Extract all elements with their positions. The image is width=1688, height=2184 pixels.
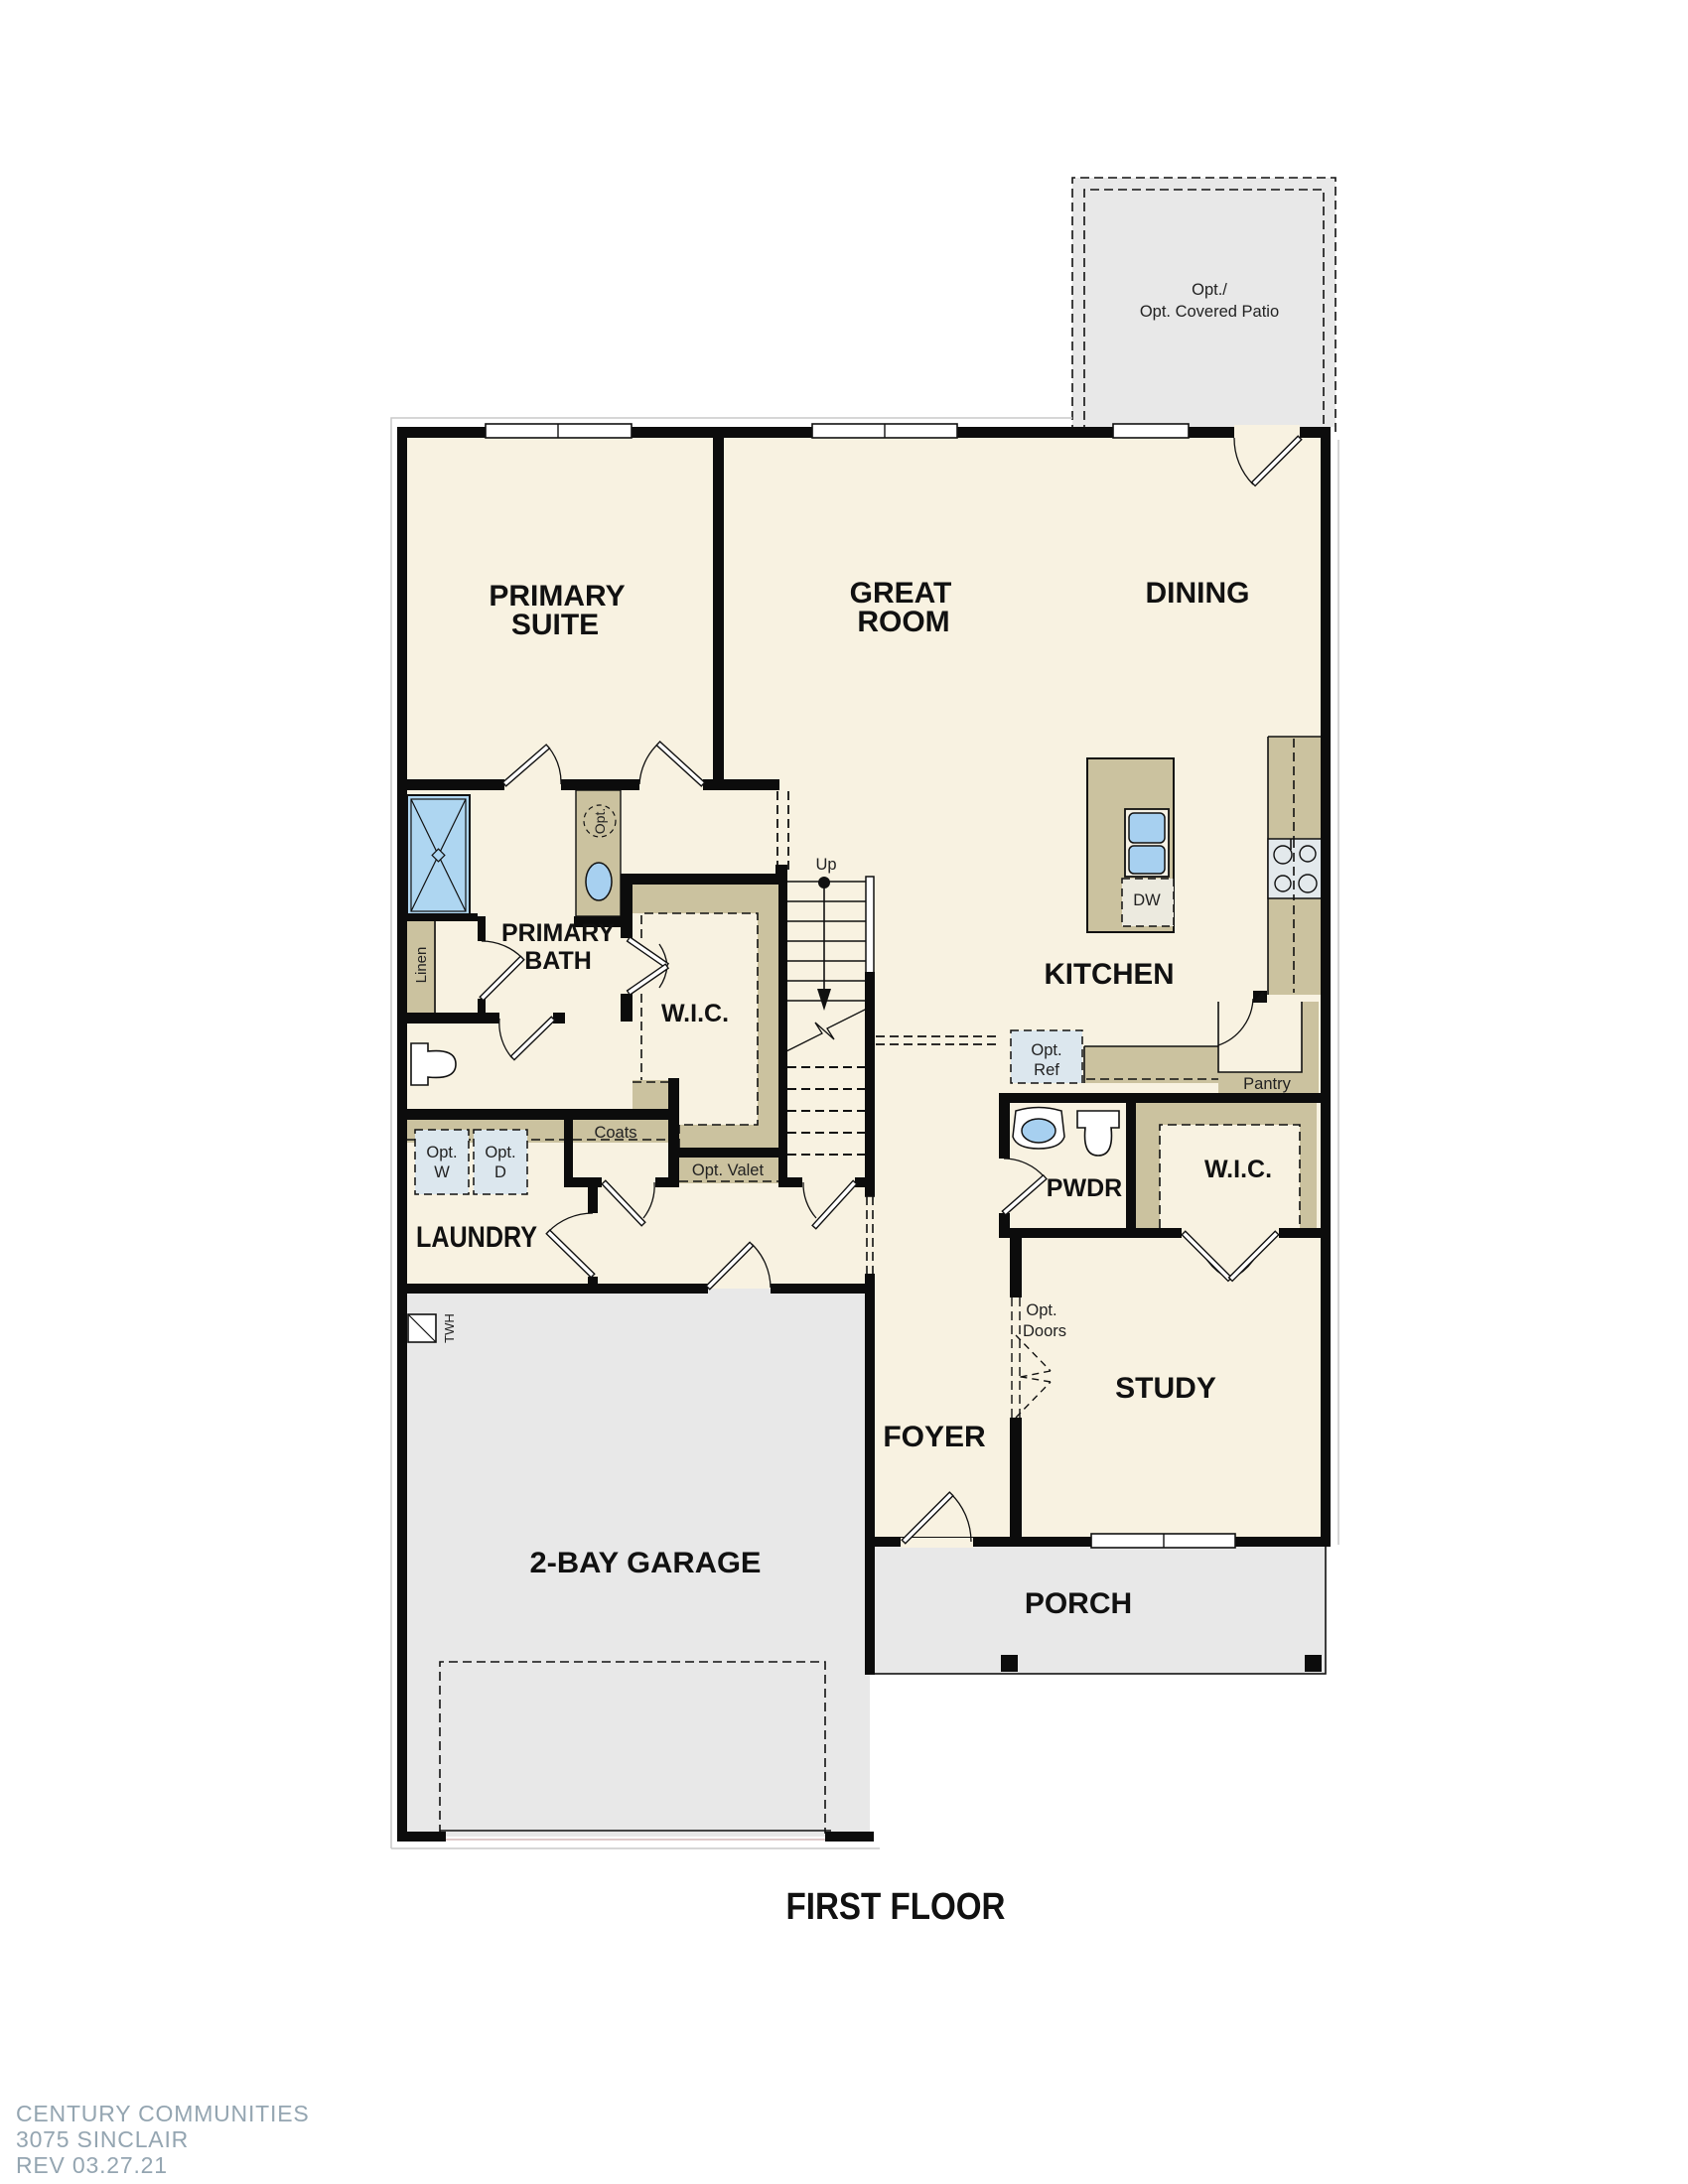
svg-text:Coats: Coats (594, 1124, 636, 1142)
svg-text:Opt.: Opt. (426, 1144, 457, 1161)
svg-text:ROOM: ROOM (857, 606, 949, 638)
svg-text:DINING: DINING (1146, 577, 1250, 610)
svg-text:Opt. Covered Patio: Opt. Covered Patio (1140, 303, 1279, 321)
svg-text:Ref: Ref (1034, 1061, 1059, 1079)
svg-text:Opt.: Opt. (485, 1144, 515, 1161)
svg-text:CENTURY COMMUNITIES: CENTURY COMMUNITIES (16, 2101, 309, 2126)
svg-text:W: W (434, 1163, 450, 1181)
svg-text:Opt./: Opt./ (1192, 281, 1227, 299)
svg-text:Opt. Valet: Opt. Valet (692, 1161, 765, 1179)
svg-text:LAUNDRY: LAUNDRY (416, 1221, 537, 1254)
svg-text:Pantry: Pantry (1243, 1075, 1291, 1093)
svg-text:PWDR: PWDR (1047, 1174, 1122, 1202)
svg-text:SUITE: SUITE (511, 609, 599, 641)
svg-text:FIRST FLOOR: FIRST FLOOR (786, 1886, 1006, 1928)
svg-text:STUDY: STUDY (1115, 1372, 1216, 1405)
svg-text:BATH: BATH (524, 947, 592, 975)
svg-text:PRIMARY: PRIMARY (501, 919, 615, 947)
svg-text:Opt.: Opt. (1026, 1301, 1056, 1319)
svg-text:KITCHEN: KITCHEN (1045, 958, 1175, 991)
svg-text:REV 03.27.21: REV 03.27.21 (16, 2152, 168, 2178)
svg-text:Up: Up (815, 856, 836, 874)
svg-text:PORCH: PORCH (1025, 1587, 1132, 1620)
svg-text:FOYER: FOYER (883, 1421, 986, 1453)
svg-text:TWH: TWH (442, 1313, 457, 1343)
svg-text:Doors: Doors (1023, 1322, 1066, 1340)
svg-text:DW: DW (1133, 891, 1161, 909)
svg-text:2-BAY GARAGE: 2-BAY GARAGE (530, 1547, 762, 1579)
svg-text:Opt.: Opt. (592, 808, 608, 834)
svg-text:W.I.C.: W.I.C. (1204, 1156, 1272, 1183)
svg-text:Opt.: Opt. (1031, 1041, 1061, 1059)
svg-text:D: D (494, 1163, 506, 1181)
svg-text:Linen: Linen (413, 947, 430, 984)
svg-text:W.I.C.: W.I.C. (661, 1000, 729, 1027)
svg-text:3075 SINCLAIR: 3075 SINCLAIR (16, 2126, 189, 2152)
